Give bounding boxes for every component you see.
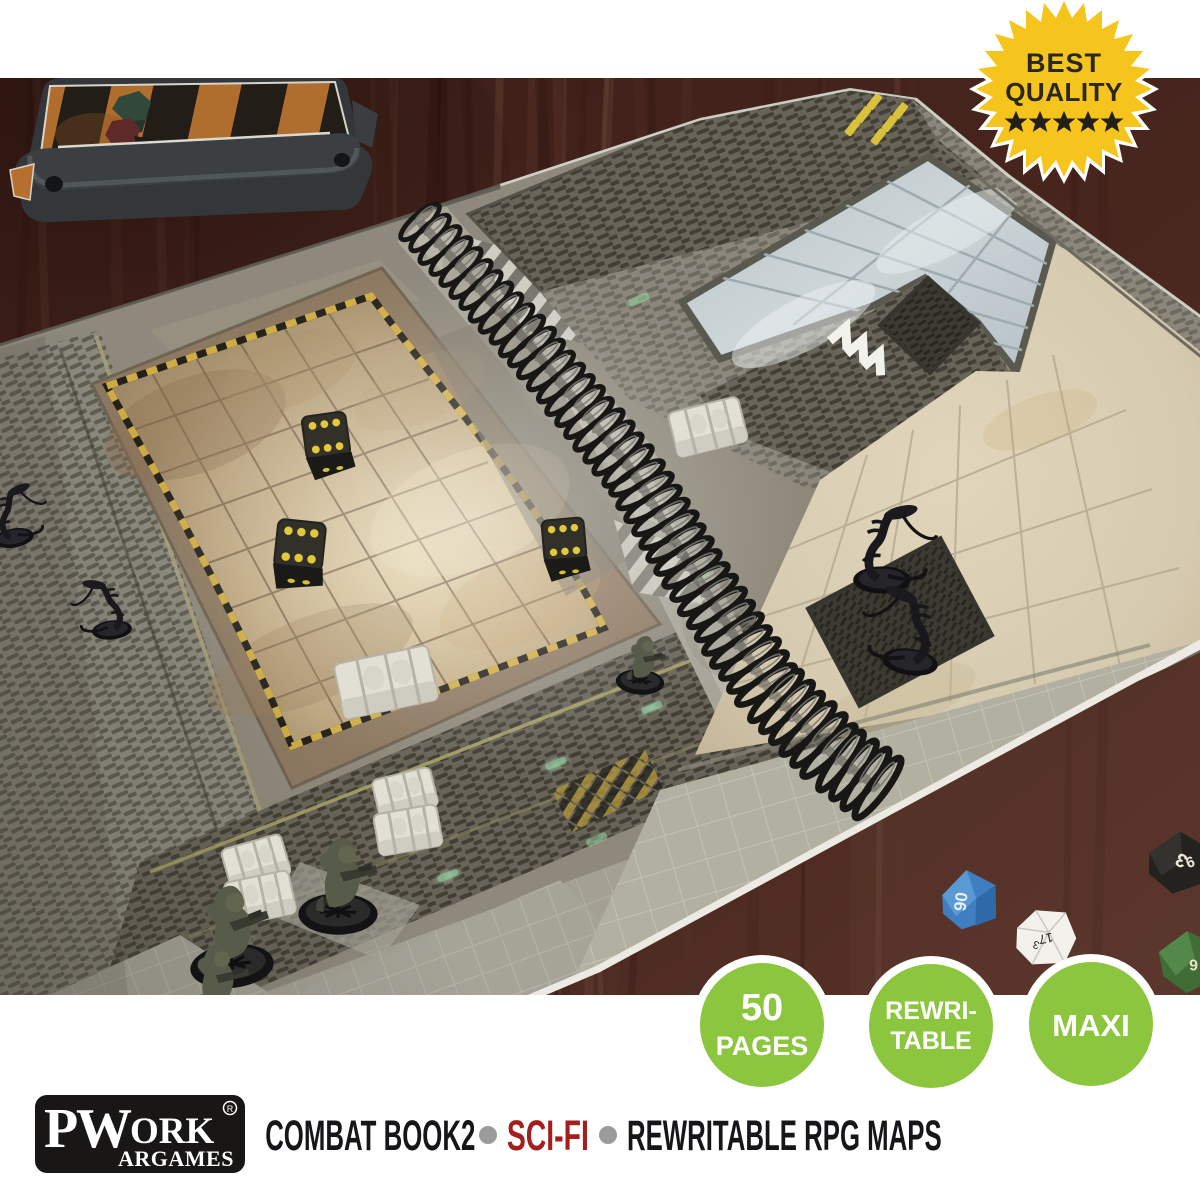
svg-text:6: 6: [1189, 956, 1198, 973]
svg-text:90: 90: [950, 891, 971, 912]
svg-text:TABLE: TABLE: [890, 1027, 971, 1055]
svg-text:P: P: [44, 1098, 78, 1160]
svg-text:MAXI: MAXI: [1052, 1008, 1130, 1043]
svg-text:R: R: [227, 1104, 234, 1114]
svg-text:BEST: BEST: [1026, 48, 1102, 78]
svg-text:QUALITY: QUALITY: [1005, 77, 1123, 107]
svg-text:SCI-FI: SCI-FI: [507, 1111, 589, 1159]
svg-text:50: 50: [741, 987, 783, 1029]
svg-text:REWRI-: REWRI-: [885, 997, 977, 1025]
svg-text:COMBAT BOOK2: COMBAT BOOK2: [265, 1111, 475, 1160]
svg-text:ARGAMES: ARGAMES: [118, 1146, 234, 1171]
svg-text:PAGES: PAGES: [716, 1031, 809, 1061]
svg-text:REWRITABLE RPG MAPS: REWRITABLE RPG MAPS: [627, 1111, 942, 1160]
